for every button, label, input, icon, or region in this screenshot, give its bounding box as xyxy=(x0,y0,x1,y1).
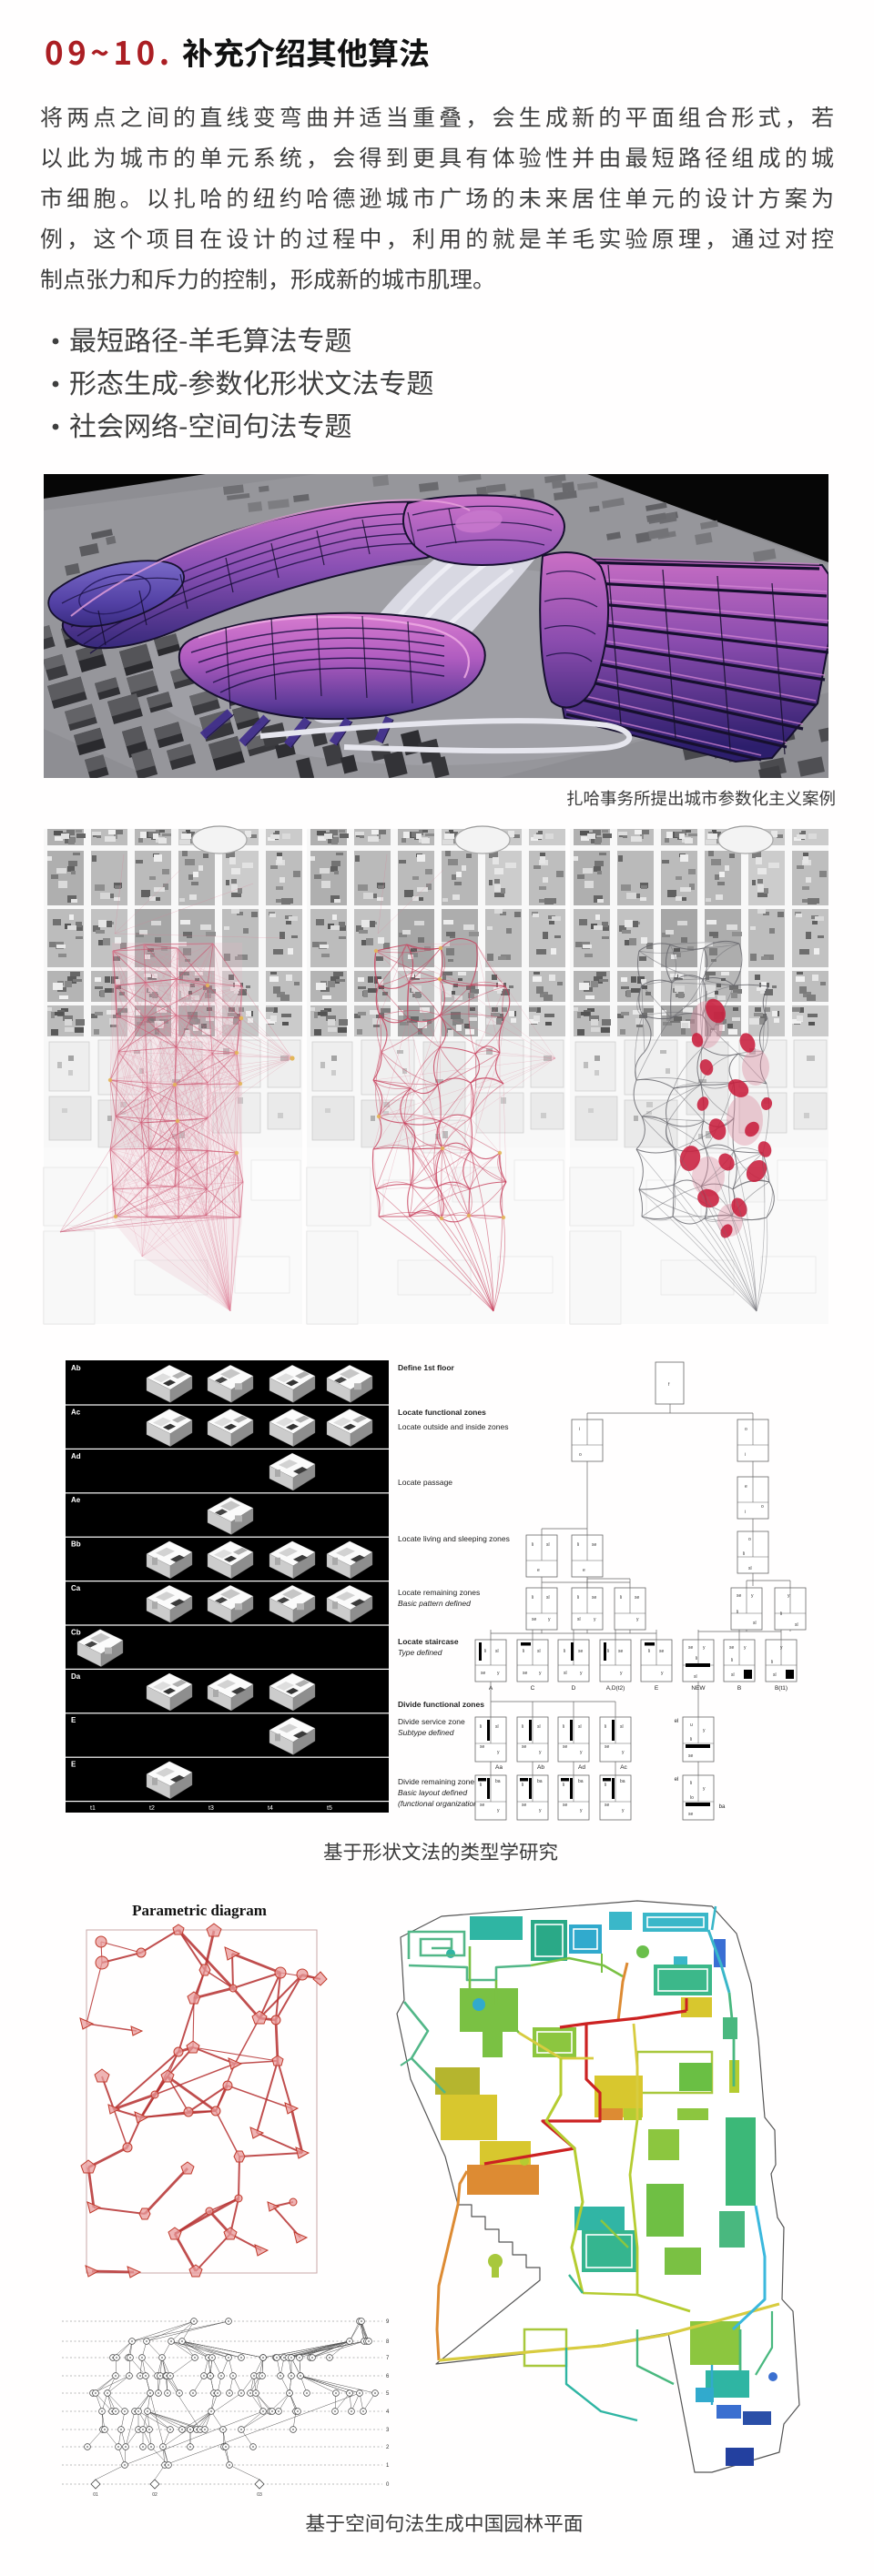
svg-text:Ad: Ad xyxy=(71,1452,81,1460)
svg-text:e: e xyxy=(583,1568,585,1573)
svg-text:t3: t3 xyxy=(208,1805,214,1812)
svg-text:Locate passage: Locate passage xyxy=(398,1478,452,1487)
svg-text:se: se xyxy=(729,1645,735,1651)
svg-text:e: e xyxy=(537,1568,540,1573)
svg-text:sl: sl xyxy=(564,1671,567,1676)
svg-text:se: se xyxy=(523,1671,528,1676)
svg-text:ba: ba xyxy=(620,1779,625,1784)
svg-text:li: li xyxy=(605,1724,606,1730)
svg-text:e: e xyxy=(745,1484,747,1490)
svg-text:se: se xyxy=(481,1671,486,1676)
svg-text:li: li xyxy=(532,1595,534,1601)
svg-text:li: li xyxy=(480,1724,482,1730)
svg-text:Aa: Aa xyxy=(495,1764,503,1771)
svg-text:se: se xyxy=(480,1803,485,1808)
svg-text:sl: sl xyxy=(495,1649,499,1654)
svg-text:ba: ba xyxy=(537,1779,543,1784)
svg-text:Locate living and sleeping zon: Locate living and sleeping zones xyxy=(398,1534,510,1543)
svg-text:1: 1 xyxy=(386,2463,390,2469)
svg-text:Bb: Bb xyxy=(71,1541,81,1549)
svg-text:li: li xyxy=(696,1656,697,1662)
svg-text:li: li xyxy=(690,1737,692,1743)
svg-text:o: o xyxy=(748,1537,751,1542)
svg-text:li: li xyxy=(563,1724,564,1730)
svg-text:03: 03 xyxy=(257,2492,262,2498)
svg-text:li: li xyxy=(577,1542,579,1548)
svg-text:se: se xyxy=(605,1803,610,1808)
svg-text:i: i xyxy=(745,1510,746,1515)
svg-text:sl: sl xyxy=(546,1542,550,1548)
svg-text:Ca: Ca xyxy=(71,1584,81,1592)
svg-text:2: 2 xyxy=(386,2445,390,2450)
svg-text:NEW: NEW xyxy=(691,1685,706,1692)
svg-text:sl: sl xyxy=(795,1622,798,1628)
svg-text:sl: sl xyxy=(495,1724,499,1730)
svg-text:Divide service zone: Divide service zone xyxy=(398,1717,465,1726)
svg-text:li: li xyxy=(522,1783,523,1788)
svg-text:ba: ba xyxy=(578,1779,584,1784)
svg-text:se: se xyxy=(688,1812,694,1817)
svg-text:sl: sl xyxy=(753,1621,757,1626)
svg-text:li: li xyxy=(607,1649,609,1654)
svg-text:9: 9 xyxy=(386,2319,390,2325)
svg-text:Locate functional zones: Locate functional zones xyxy=(398,1408,486,1417)
svg-text:se: se xyxy=(737,1593,742,1599)
svg-text:D: D xyxy=(572,1685,576,1692)
svg-text:Ac: Ac xyxy=(620,1764,627,1771)
svg-text:t5: t5 xyxy=(327,1805,332,1812)
svg-text:3: 3 xyxy=(386,2428,390,2433)
svg-text:sl: sl xyxy=(537,1724,541,1730)
svg-text:Subtype defined: Subtype defined xyxy=(398,1728,454,1737)
svg-text:li: li xyxy=(737,1610,738,1615)
svg-text:se: se xyxy=(522,1744,527,1750)
svg-text:se: se xyxy=(688,1753,694,1759)
svg-text:0: 0 xyxy=(386,2482,390,2488)
svg-text:se: se xyxy=(532,1617,537,1622)
svg-text:li: li xyxy=(648,1649,650,1654)
svg-text:li: li xyxy=(564,1649,565,1654)
svg-text:ba: ba xyxy=(719,1804,726,1810)
svg-text:lo: lo xyxy=(690,1795,694,1801)
svg-text:se: se xyxy=(618,1649,624,1654)
svg-text:u: u xyxy=(690,1722,693,1728)
svg-text:Locate outside and inside zone: Locate outside and inside zones xyxy=(398,1422,508,1431)
svg-text:Locate staircase: Locate staircase xyxy=(398,1637,459,1646)
svg-text:t4: t4 xyxy=(268,1805,273,1812)
svg-text:sl: sl xyxy=(748,1566,752,1571)
svg-text:se: se xyxy=(635,1595,640,1601)
svg-text:li: li xyxy=(780,1611,782,1617)
svg-text:li: li xyxy=(743,1551,745,1557)
svg-text:Ad: Ad xyxy=(578,1764,585,1771)
svg-text:E: E xyxy=(655,1685,659,1692)
svg-text:li: li xyxy=(620,1595,622,1601)
svg-text:i: i xyxy=(745,1452,746,1458)
svg-text:5: 5 xyxy=(386,2391,390,2397)
svg-text:el: el xyxy=(675,1777,679,1783)
svg-text:t1: t1 xyxy=(90,1805,96,1812)
svg-text:li: li xyxy=(771,1660,773,1665)
svg-text:se: se xyxy=(578,1649,584,1654)
svg-text:Da: Da xyxy=(71,1672,81,1681)
svg-text:ba: ba xyxy=(495,1779,501,1784)
svg-text:i: i xyxy=(579,1427,580,1432)
svg-text:Type defined: Type defined xyxy=(398,1648,442,1657)
svg-text:li: li xyxy=(523,1649,524,1654)
svg-text:li: li xyxy=(690,1781,692,1786)
svg-text:Ab: Ab xyxy=(71,1364,81,1372)
svg-text:li: li xyxy=(484,1649,486,1654)
svg-text:li: li xyxy=(522,1724,523,1730)
svg-text:6: 6 xyxy=(386,2374,390,2379)
svg-text:sl: sl xyxy=(620,1724,624,1730)
svg-text:sl: sl xyxy=(694,1674,697,1680)
svg-text:Ac: Ac xyxy=(71,1408,81,1416)
svg-text:A,D(t2): A,D(t2) xyxy=(606,1685,625,1692)
svg-text:B(t1): B(t1) xyxy=(775,1685,788,1692)
svg-text:7: 7 xyxy=(386,2356,390,2361)
svg-text:Cb: Cb xyxy=(71,1628,81,1636)
svg-text:t2: t2 xyxy=(149,1805,155,1812)
svg-text:se: se xyxy=(659,1649,665,1654)
svg-text:B: B xyxy=(737,1685,741,1692)
svg-text:se: se xyxy=(563,1744,568,1750)
svg-text:o: o xyxy=(579,1452,582,1458)
svg-text:Divide remaining zones: Divide remaining zones xyxy=(398,1777,478,1786)
svg-text:li: li xyxy=(480,1783,482,1788)
svg-text:li: li xyxy=(731,1658,733,1663)
svg-text:se: se xyxy=(688,1645,694,1651)
svg-text:Ab: Ab xyxy=(537,1764,544,1771)
svg-text:sl: sl xyxy=(731,1672,735,1678)
svg-text:Locate remaining zones: Locate remaining zones xyxy=(398,1588,480,1597)
svg-text:o: o xyxy=(761,1504,764,1510)
svg-text:Basic layout defined: Basic layout defined xyxy=(398,1788,467,1797)
svg-text:o: o xyxy=(745,1427,747,1432)
svg-text:sl: sl xyxy=(546,1595,550,1601)
svg-text:Parametric diagram: Parametric diagram xyxy=(132,1902,267,1919)
svg-text:8: 8 xyxy=(386,2339,390,2345)
svg-text:C: C xyxy=(531,1685,535,1692)
svg-text:se: se xyxy=(592,1542,597,1548)
svg-text:se: se xyxy=(522,1803,527,1808)
svg-text:Divide functional zones: Divide functional zones xyxy=(398,1700,484,1709)
svg-text:el: el xyxy=(675,1719,679,1724)
svg-text:se: se xyxy=(480,1744,485,1750)
svg-text:sl: sl xyxy=(578,1724,582,1730)
svg-text:Define 1st floor: Define 1st floor xyxy=(398,1363,455,1372)
svg-text:se: se xyxy=(605,1744,610,1750)
svg-text:se: se xyxy=(563,1803,568,1808)
svg-text:02: 02 xyxy=(152,2492,158,2498)
svg-text:sl: sl xyxy=(577,1617,581,1622)
svg-text:Basic pattern defined: Basic pattern defined xyxy=(398,1599,471,1608)
svg-text:E: E xyxy=(71,1716,76,1724)
svg-text:4: 4 xyxy=(386,2409,390,2415)
svg-text:li: li xyxy=(577,1595,579,1601)
svg-text:sl: sl xyxy=(773,1672,777,1678)
svg-text:li: li xyxy=(532,1542,534,1548)
svg-text:01: 01 xyxy=(93,2492,98,2498)
svg-text:(functional organization): (functional organization) xyxy=(398,1799,481,1808)
svg-text:li: li xyxy=(563,1783,564,1788)
svg-text:sl: sl xyxy=(537,1649,541,1654)
svg-text:Ae: Ae xyxy=(71,1496,81,1504)
svg-text:se: se xyxy=(592,1595,597,1601)
svg-text:li: li xyxy=(605,1783,606,1788)
svg-text:E: E xyxy=(71,1761,76,1769)
